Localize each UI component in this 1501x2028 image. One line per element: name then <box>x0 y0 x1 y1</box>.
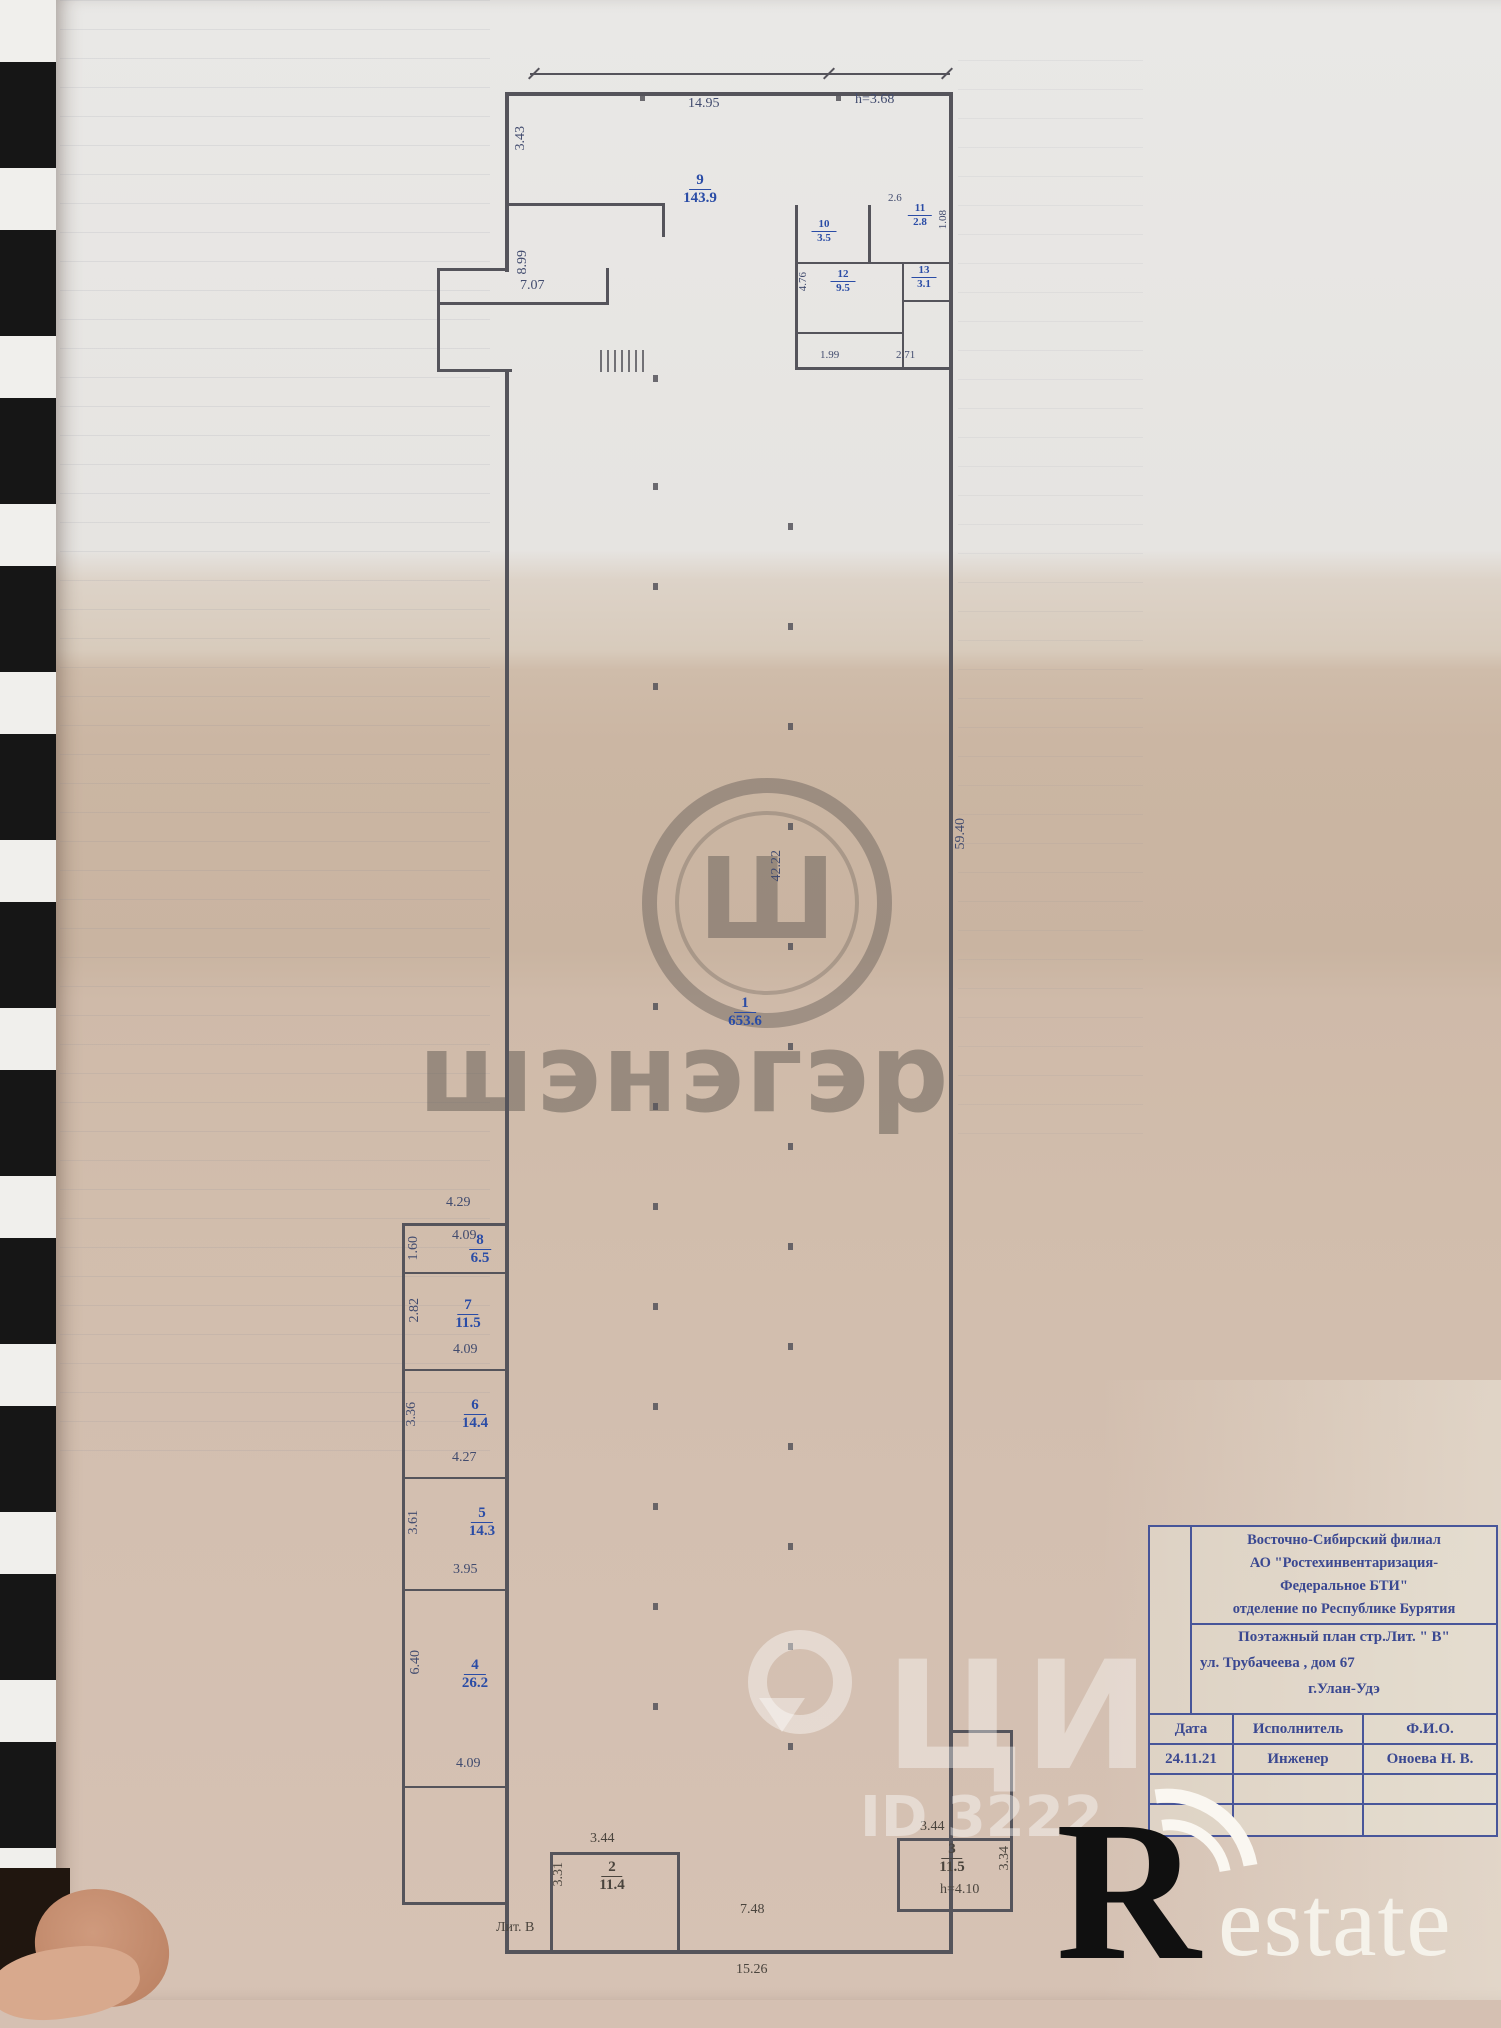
column-mark <box>788 1343 793 1350</box>
dim-col_top: 4.29 <box>446 1196 471 1210</box>
room-label-r7: 711.5 <box>455 1297 480 1333</box>
room-area: 14.3 <box>469 1523 495 1540</box>
room-area: 3.5 <box>812 232 837 245</box>
org-line-1: Восточно-Сибирский филиал <box>1192 1529 1496 1552</box>
wall <box>437 302 609 305</box>
wall <box>897 1909 1013 1912</box>
wall <box>402 1369 509 1371</box>
column-mark <box>653 1403 658 1410</box>
column-mark <box>788 623 793 630</box>
dim-r2_w: 3.44 <box>590 1832 615 1846</box>
column-mark <box>653 1503 658 1510</box>
dim-top_height: h=3.68 <box>855 93 894 107</box>
cell-empty <box>1364 1775 1496 1805</box>
cell-empty <box>1234 1775 1364 1805</box>
room-number: 4 <box>464 1657 486 1675</box>
dim-r5_d: 3.61 <box>407 1510 421 1535</box>
dim-r4_w: 4.09 <box>456 1757 481 1771</box>
cell-role: Инженер <box>1234 1745 1364 1775</box>
wall <box>606 268 609 304</box>
wall <box>437 268 509 271</box>
dim-bot_total: 15.26 <box>736 1963 768 1977</box>
org-line-3: Федеральное БТИ" <box>1192 1575 1496 1598</box>
wall <box>505 369 509 1954</box>
notebook-binding-strip <box>0 0 56 2000</box>
dim-r8_d: 1.60 <box>407 1236 421 1261</box>
column-mark <box>640 94 645 101</box>
room-number: 9 <box>689 172 711 190</box>
column-mark <box>653 1203 658 1210</box>
room-number: 2 <box>601 1859 623 1877</box>
room-label-r4: 426.2 <box>462 1657 488 1693</box>
column-mark <box>788 823 793 830</box>
column-mark <box>788 523 793 530</box>
wall <box>402 1589 509 1591</box>
wall <box>402 1223 405 1905</box>
room-label-r12: 129.5 <box>831 268 856 294</box>
wall <box>902 300 951 302</box>
wall <box>868 205 871 264</box>
column-mark <box>788 1143 793 1150</box>
column-mark <box>788 1043 793 1050</box>
dim-wc_b2: 2.71 <box>896 350 915 361</box>
wall <box>662 203 665 237</box>
dim-hall_mid: 42.22 <box>770 850 784 882</box>
watermark-logo-inner-ring: Ш <box>675 811 859 995</box>
title-block: Восточно-Сибирский филиал АО "Ростехинве… <box>1148 1525 1498 1837</box>
document-title: Поэтажный план стр.Лит. " В" <box>1192 1629 1496 1646</box>
column-mark <box>653 1603 658 1610</box>
room-label-r11: 112.8 <box>908 202 932 228</box>
wall <box>402 1272 509 1274</box>
cian-pin-icon-tip <box>759 1698 805 1732</box>
wall <box>402 1223 509 1226</box>
room-number: 7 <box>457 1297 479 1315</box>
dim-r4_d: 6.40 <box>409 1650 423 1675</box>
wall <box>795 332 904 334</box>
dim-r6_w: 4.27 <box>452 1451 477 1465</box>
room-number: 1 <box>734 995 756 1013</box>
wall <box>505 203 665 206</box>
cian-watermark-letters: ЦИ <box>885 1642 1150 1792</box>
column-mark <box>653 583 658 590</box>
column-mark <box>653 483 658 490</box>
wall <box>795 367 952 370</box>
room-area: 143.9 <box>683 190 717 207</box>
column-mark <box>788 1443 793 1450</box>
room-area: 11.5 <box>455 1315 480 1332</box>
room-label-r6: 614.4 <box>462 1397 488 1433</box>
column-mark <box>788 1243 793 1250</box>
column-mark <box>836 94 841 101</box>
watermark-logo-letter: Ш <box>698 844 836 956</box>
room-area: 653.6 <box>728 1013 762 1030</box>
room-area: 11.4 <box>599 1877 624 1894</box>
dim-corr_d: 4.76 <box>798 272 809 291</box>
room-area: 14.4 <box>462 1415 488 1432</box>
wall <box>437 369 512 372</box>
column-mark <box>653 1303 658 1310</box>
title-block-description: Поэтажный план стр.Лит. " В" ул. Трубаче… <box>1192 1623 1496 1711</box>
column-mark <box>788 723 793 730</box>
wall <box>550 1852 680 1855</box>
room-number: 12 <box>831 268 856 282</box>
organization-name: Восточно-Сибирский филиал АО "Ростехинве… <box>1192 1527 1496 1625</box>
col-header-role: Исполнитель <box>1234 1715 1364 1745</box>
column-mark <box>788 1543 793 1550</box>
room-label-r1: 1653.6 <box>728 995 762 1031</box>
restate-logo-text: estate <box>1218 1872 1452 1972</box>
wall <box>402 1902 509 1905</box>
column-mark <box>653 1103 658 1110</box>
column-mark <box>653 1703 658 1710</box>
cell-name: Оноева Н. В. <box>1364 1745 1496 1775</box>
dim-r7_w: 4.09 <box>453 1343 478 1357</box>
stairs-hatch <box>600 350 644 372</box>
room-area: 6.5 <box>469 1250 491 1267</box>
faint-ruled-lines-left <box>60 0 490 1460</box>
col-header-name: Ф.И.О. <box>1364 1715 1496 1745</box>
room-number: 11 <box>908 202 932 216</box>
room-label-r10: 103.5 <box>812 218 837 244</box>
dim-lobby_w: 7.07 <box>520 279 545 293</box>
dim-r2_d: 3.31 <box>552 1862 566 1887</box>
room-area: 26.2 <box>462 1675 488 1692</box>
dim-hall_len: 59.40 <box>954 818 968 850</box>
wall <box>530 73 950 75</box>
wall <box>402 1477 509 1479</box>
room-number: 8 <box>469 1232 491 1250</box>
dim-wc_d: 1.08 <box>938 210 949 229</box>
column-mark <box>653 1003 658 1010</box>
column-mark <box>653 375 658 382</box>
dim-top_width: 14.95 <box>688 97 720 111</box>
dim-r5_w: 3.95 <box>453 1563 478 1577</box>
dim-left_a: 3.43 <box>514 126 528 151</box>
org-line-2: АО "Ростехинвентаризация- <box>1192 1552 1496 1575</box>
column-mark <box>788 943 793 950</box>
room-number: 6 <box>464 1397 486 1415</box>
faint-ruled-lines-right <box>958 60 1143 1140</box>
cell-empty <box>1364 1805 1496 1835</box>
watermark-logo-circle: Ш <box>642 778 892 1028</box>
room-label-r2: 211.4 <box>599 1859 624 1895</box>
room-number: 5 <box>471 1505 493 1523</box>
cell-empty <box>1234 1805 1364 1835</box>
room-label-r8: 86.5 <box>469 1232 491 1268</box>
wall <box>505 92 509 272</box>
title-block-margin-column <box>1150 1527 1192 1713</box>
dim-r7_d: 2.82 <box>408 1298 422 1323</box>
wall <box>437 268 440 372</box>
room-area: 9.5 <box>831 282 856 295</box>
dim-r6_d: 3.36 <box>405 1402 419 1427</box>
dim-wc_w: 2.6 <box>888 193 902 204</box>
room-area: 2.8 <box>908 216 932 229</box>
dim-wc_b1: 1.99 <box>820 350 839 361</box>
address-line: ул. Трубачеева , дом 67 <box>1192 1655 1496 1672</box>
wall <box>505 1950 953 1954</box>
room-area: 11.5 <box>939 1859 964 1876</box>
watermark-shenegher-text: шэнэгэр <box>418 1018 950 1128</box>
room-label-r9: 9143.9 <box>683 172 717 208</box>
room-area: 3.1 <box>912 278 937 291</box>
city-line: г.Улан-Удэ <box>1192 1681 1496 1698</box>
cell-date: 24.11.21 <box>1150 1745 1234 1775</box>
wall <box>677 1852 680 1952</box>
column-mark <box>788 1743 793 1750</box>
room-number: 13 <box>912 264 937 278</box>
dim-bot_mid: 7.48 <box>740 1903 765 1917</box>
dim-litera: Лит. В <box>496 1921 534 1935</box>
org-line-4: отделение по Республике Бурятия <box>1192 1598 1496 1621</box>
column-mark <box>653 683 658 690</box>
dim-left_b: 8.99 <box>516 250 530 275</box>
room-label-r5: 514.3 <box>469 1505 495 1541</box>
wall <box>402 1786 509 1788</box>
room-number: 10 <box>812 218 837 232</box>
room-label-r13: 133.1 <box>912 264 937 290</box>
col-header-date: Дата <box>1150 1715 1234 1745</box>
dim-r3_h: h=4.10 <box>940 1883 979 1897</box>
